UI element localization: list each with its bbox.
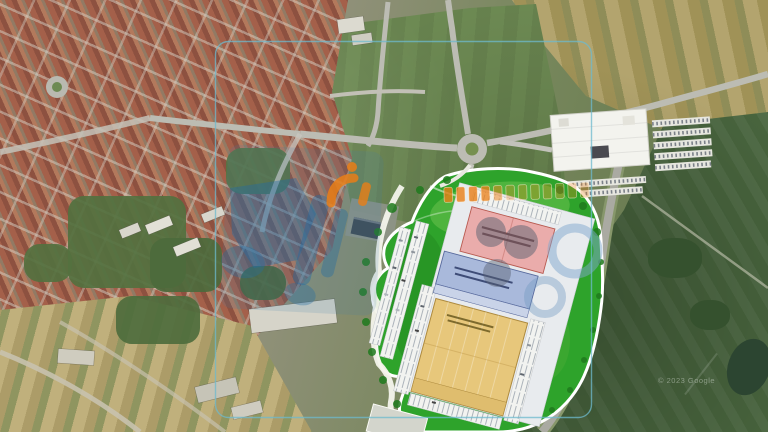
shopping-center <box>550 109 714 195</box>
farm-track <box>642 196 768 288</box>
watermark-grey-circle <box>476 217 506 247</box>
watermark-grey-circle <box>483 259 511 287</box>
map-attribution: © 2023 Google <box>658 376 715 385</box>
watermark-grey-circle <box>504 225 538 259</box>
map-vector-overlay <box>0 0 768 432</box>
main-roundabout-center <box>466 143 479 156</box>
satellite-map-screenshot: © 2023 Google <box>0 0 768 432</box>
shopping-center-entrance <box>590 145 609 158</box>
